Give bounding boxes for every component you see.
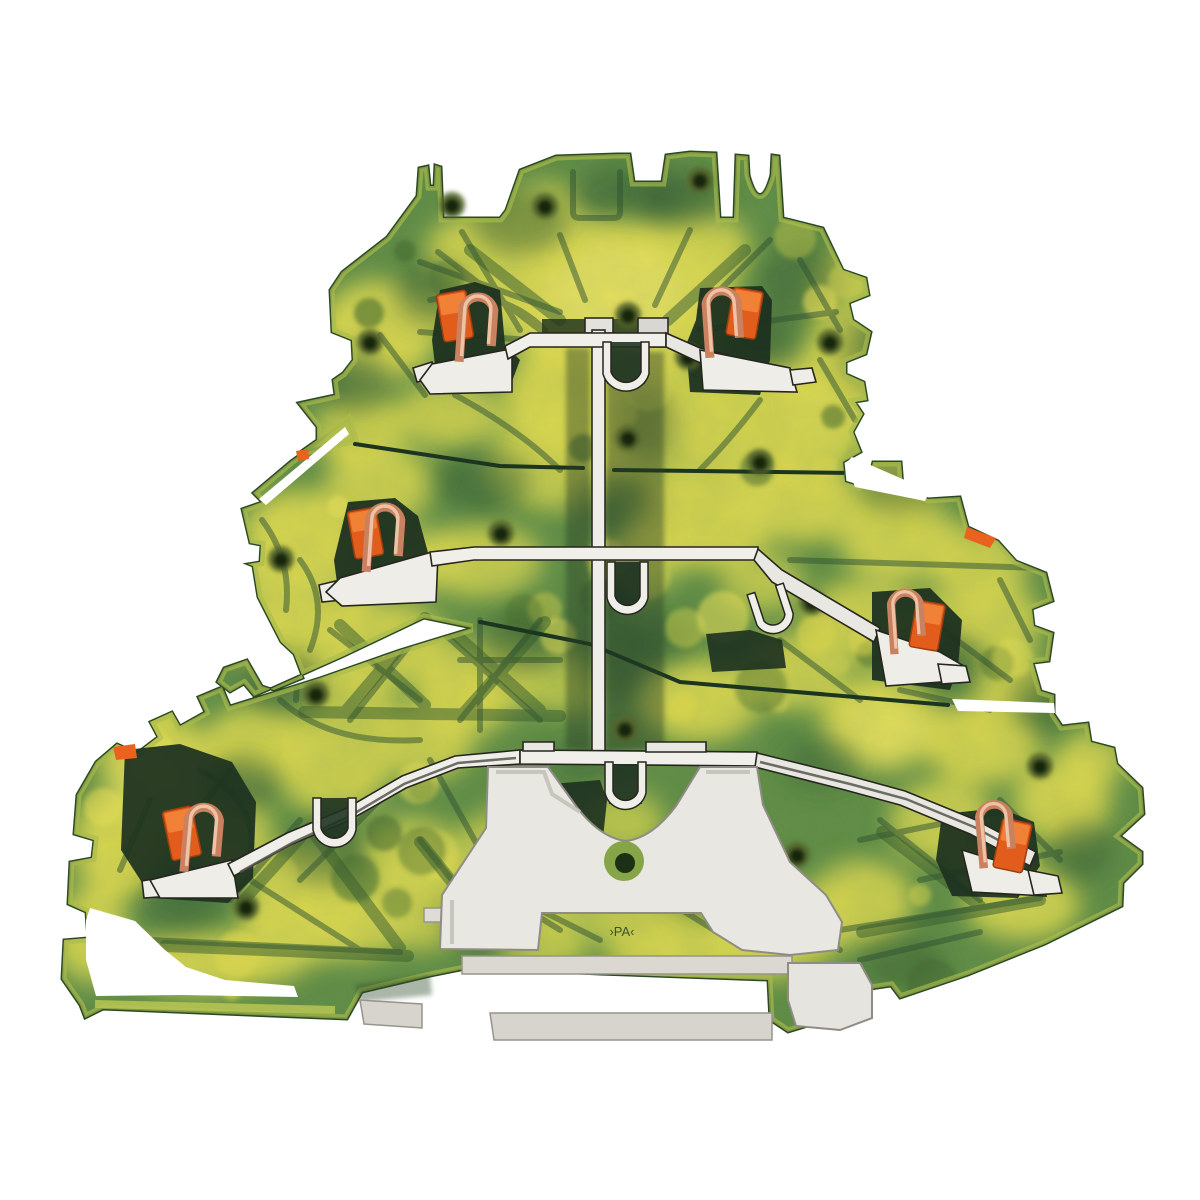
svg-text:›PA‹: ›PA‹ bbox=[609, 924, 634, 939]
